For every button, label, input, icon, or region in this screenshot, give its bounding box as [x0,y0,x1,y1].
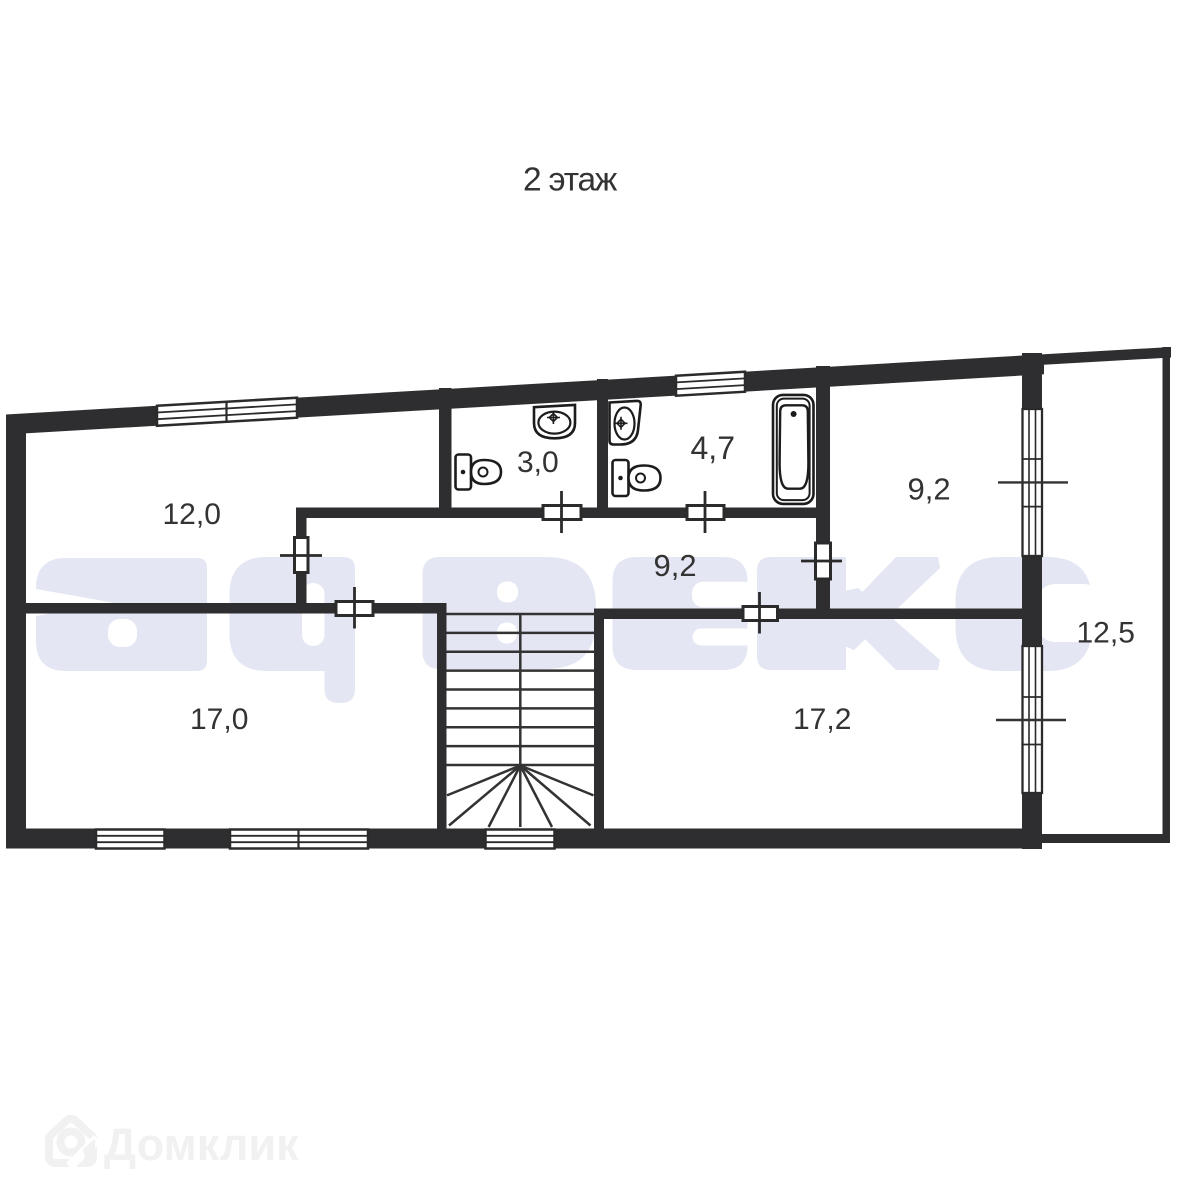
svg-text:2 этаж: 2 этаж [523,162,618,199]
svg-text:Домклик: Домклик [104,1119,299,1170]
svg-text:12,5: 12,5 [1077,617,1135,650]
svg-text:17,2: 17,2 [793,703,851,736]
svg-text:9,2: 9,2 [654,548,697,583]
svg-text:4,7: 4,7 [691,430,735,466]
svg-text:3,0: 3,0 [517,446,559,479]
svg-text:17,0: 17,0 [190,703,248,736]
svg-text:12,0: 12,0 [163,498,221,531]
svg-text:9,2: 9,2 [908,472,951,507]
